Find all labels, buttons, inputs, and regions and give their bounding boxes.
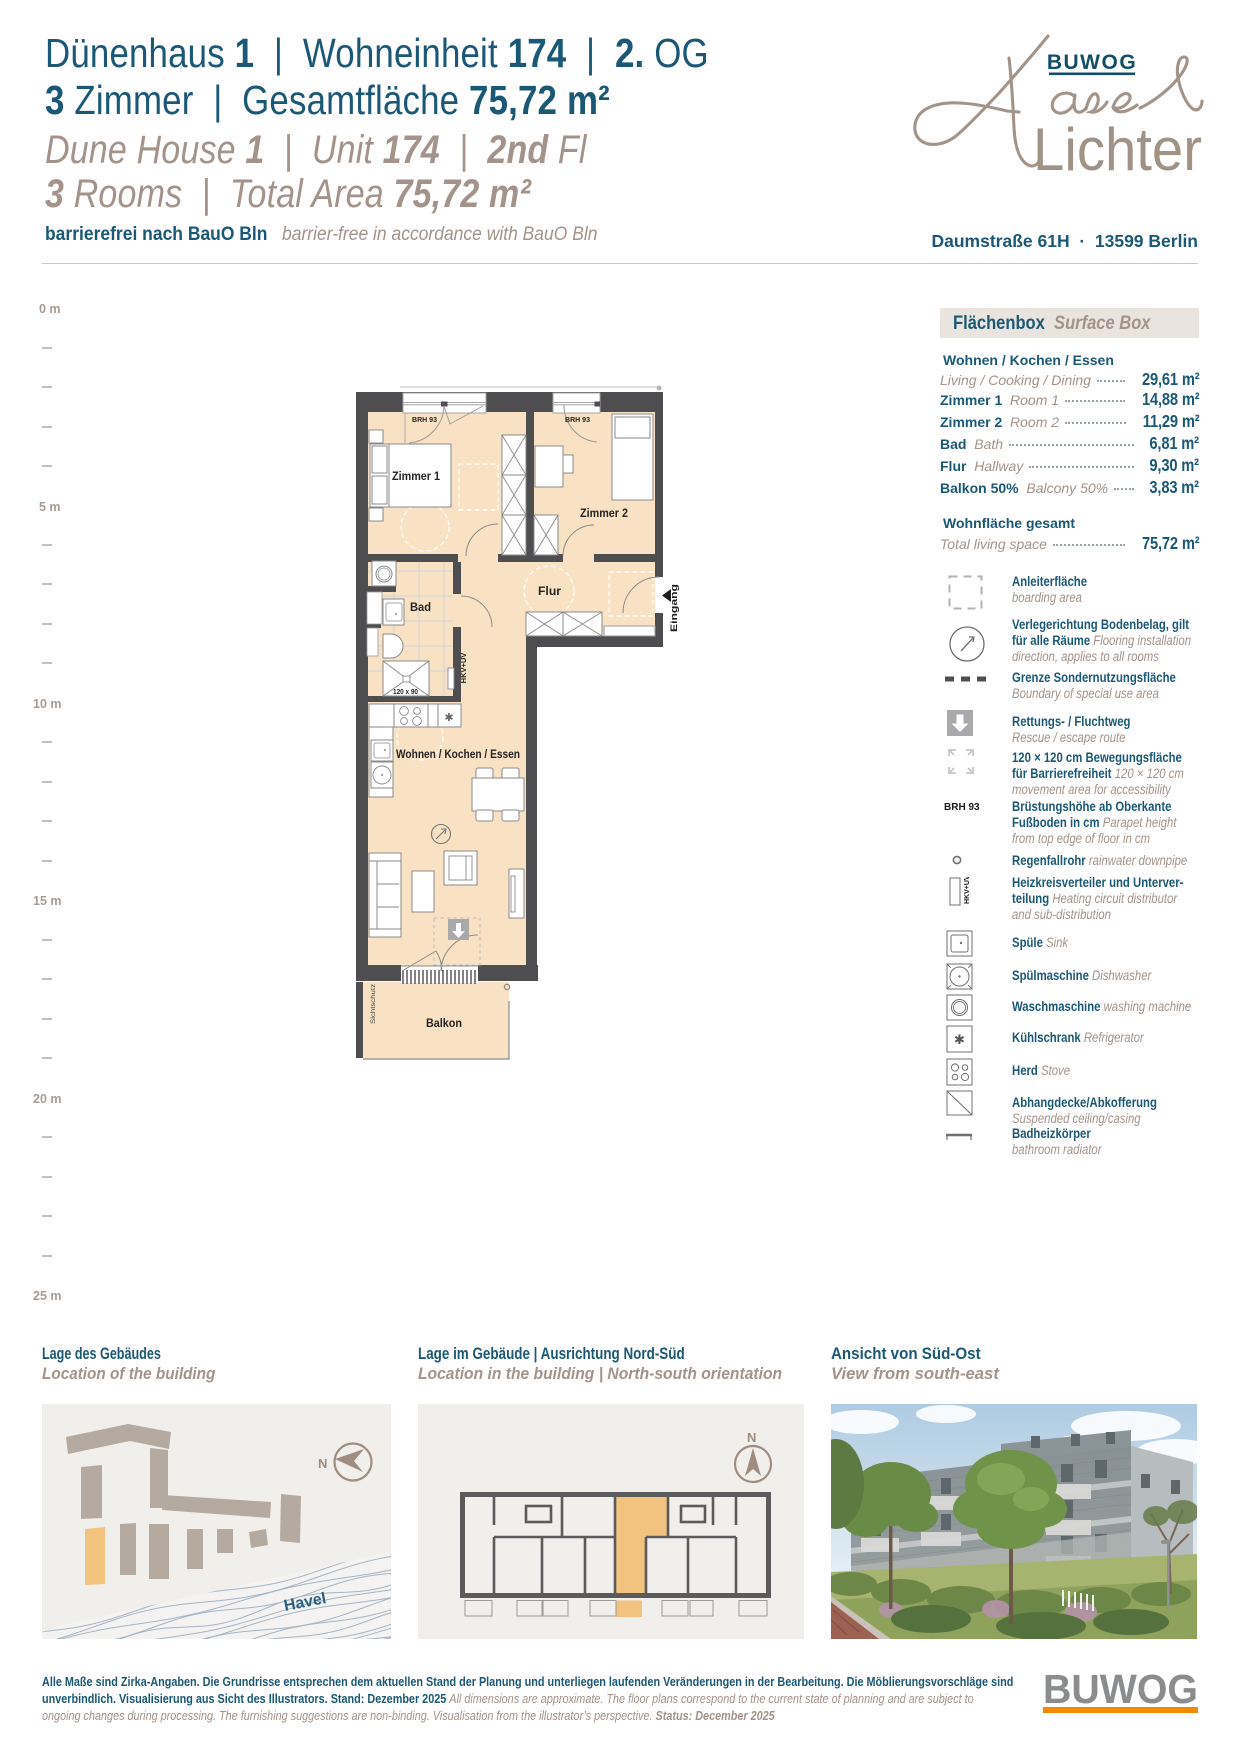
svg-text:BUWOG: BUWOG (1043, 1670, 1198, 1712)
svg-text:0 m: 0 m (39, 302, 61, 316)
svg-text:Lichter: Lichter (1033, 116, 1202, 183)
svg-text:15 m: 15 m (33, 894, 62, 908)
svg-text:120 x 90: 120 x 90 (393, 689, 418, 696)
svg-text:20 m: 20 m (33, 1092, 62, 1106)
svg-text:BRH 93: BRH 93 (412, 415, 437, 424)
svg-text:Bad: Bad (410, 600, 431, 614)
svg-text:N: N (318, 1456, 327, 1471)
svg-text:✱: ✱ (954, 1032, 965, 1047)
svg-text:Flur: Flur (538, 584, 561, 598)
svg-text:BRH 93: BRH 93 (565, 415, 590, 424)
svg-text:Sichtschutz: Sichtschutz (371, 984, 377, 1024)
svg-text:Eingang: Eingang (669, 584, 680, 632)
svg-text:10 m: 10 m (33, 697, 62, 711)
svg-text:N: N (747, 1430, 756, 1445)
svg-text:Wohnen / Kochen / Essen: Wohnen / Kochen / Essen (396, 748, 520, 761)
svg-text:5 m: 5 m (39, 500, 61, 514)
svg-text:BUWOG: BUWOG (1047, 51, 1137, 74)
svg-text:Balkon: Balkon (426, 1016, 462, 1030)
svg-text:✱: ✱ (444, 712, 453, 724)
svg-text:HKV+UV: HKV+UV (964, 877, 971, 904)
svg-text:Zimmer 1: Zimmer 1 (392, 469, 440, 483)
svg-text:HKV+UV: HKV+UV (459, 653, 468, 684)
svg-text:Zimmer 2: Zimmer 2 (580, 506, 628, 520)
svg-text:25 m: 25 m (33, 1289, 62, 1303)
